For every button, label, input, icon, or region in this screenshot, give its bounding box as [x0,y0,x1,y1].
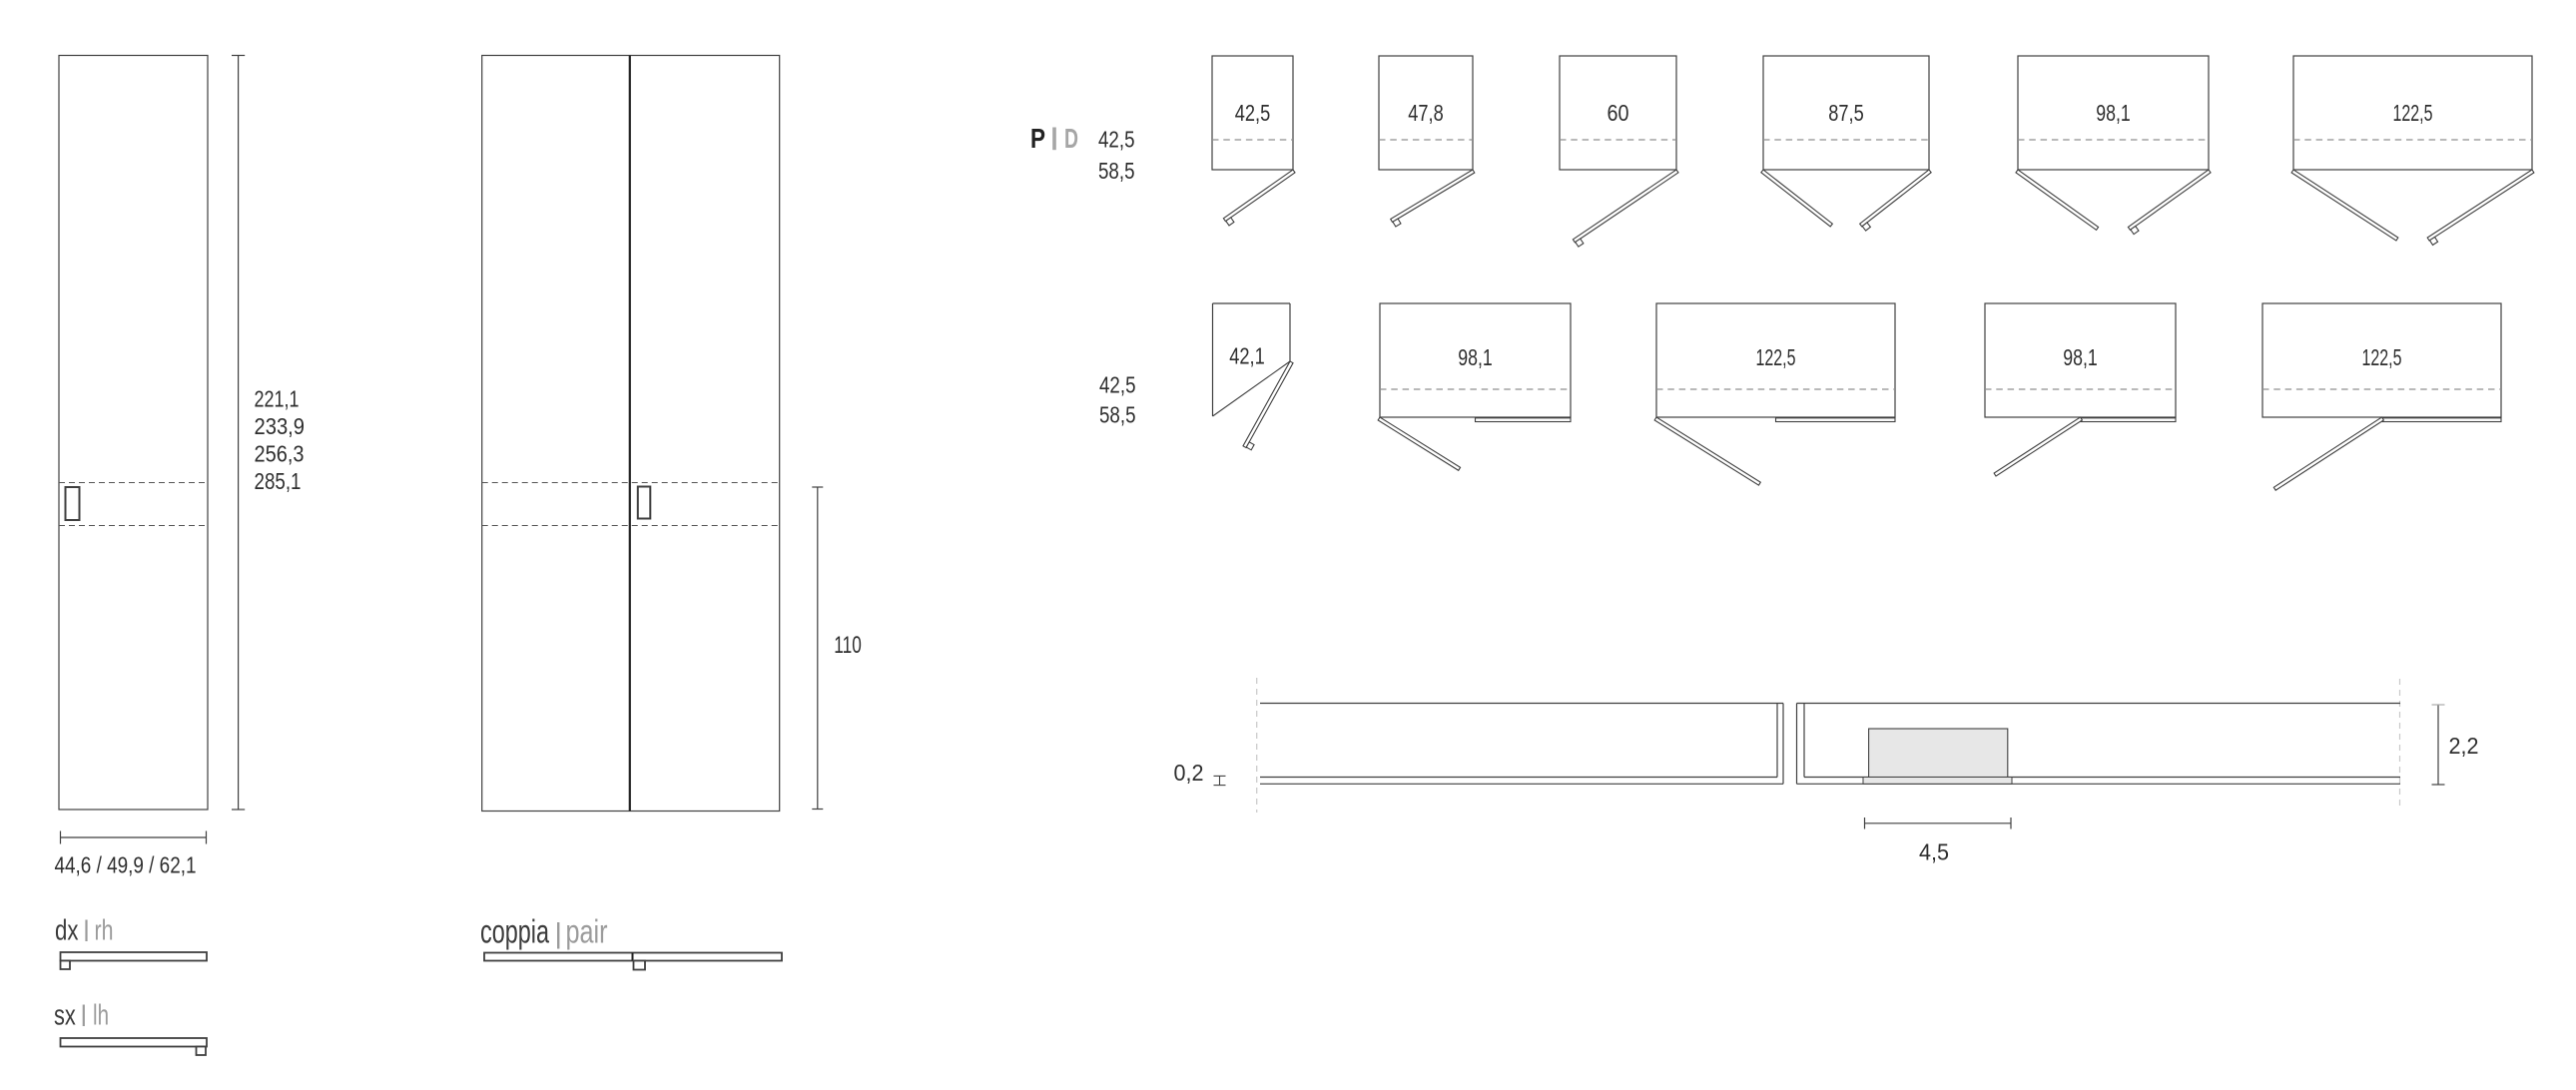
svg-text:110: 110 [834,632,862,659]
svg-text:4,5: 4,5 [1919,839,1949,865]
svg-text:58,5: 58,5 [1098,158,1135,184]
svg-text:P: P [1030,123,1045,154]
svg-text:256,3: 256,3 [255,441,305,467]
svg-text:122,5: 122,5 [2362,344,2402,370]
svg-text:dx: dx [55,915,79,947]
svg-text:221,1: 221,1 [255,386,300,412]
svg-text:98,1: 98,1 [1458,344,1493,370]
svg-text:2,2: 2,2 [2449,733,2479,759]
svg-text:98,1: 98,1 [2063,344,2098,370]
svg-text:98,1: 98,1 [2096,100,2131,126]
svg-text:42,5: 42,5 [1099,372,1136,398]
svg-text:pair: pair [566,913,608,950]
svg-text:60: 60 [1608,100,1629,126]
svg-text:rh: rh [95,915,114,947]
svg-text:122,5: 122,5 [1756,344,1796,370]
svg-text:58,5: 58,5 [1099,402,1136,428]
svg-text:D: D [1064,123,1078,154]
svg-text:sx: sx [54,1000,76,1032]
svg-text:87,5: 87,5 [1828,100,1864,126]
svg-text:coppia: coppia [480,913,549,950]
svg-text:42,5: 42,5 [1235,100,1271,126]
svg-text:0,2: 0,2 [1174,760,1204,786]
svg-text:122,5: 122,5 [2393,100,2433,126]
svg-text:285,1: 285,1 [255,468,302,494]
svg-text:42,1: 42,1 [1229,343,1265,369]
svg-text:lh: lh [93,1000,109,1032]
svg-text:233,9: 233,9 [255,413,306,439]
svg-text:42,5: 42,5 [1098,127,1135,153]
svg-text:44,6 / 49,9 / 62,1: 44,6 / 49,9 / 62,1 [55,852,197,878]
svg-text:47,8: 47,8 [1408,100,1444,126]
